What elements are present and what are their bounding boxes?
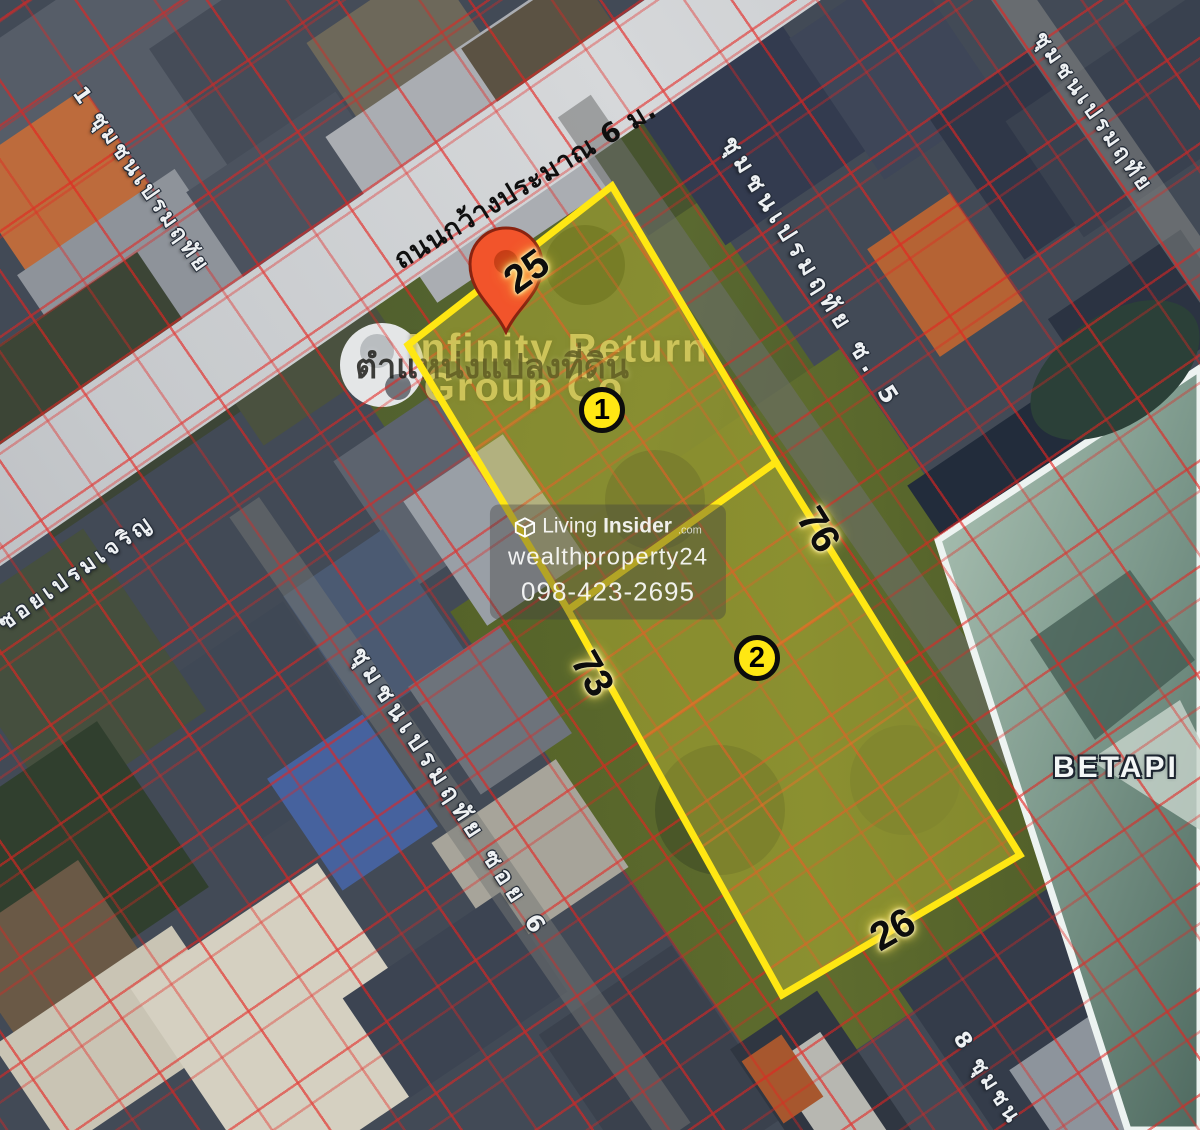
plot-number-2: 2 <box>749 642 765 675</box>
plot-number-1-badge: 1 <box>579 387 625 433</box>
account-name: wealthproperty24 <box>508 544 708 572</box>
plot-number-1: 1 <box>594 394 610 427</box>
brand-tld: .com <box>678 525 702 537</box>
brand-prefix: Living <box>542 515 597 539</box>
satellite-map: 1 ชุมชนเปรมฤทัย ชุมชนเปรมฤทัย ชุมชนเปรมฤ… <box>0 0 1200 1130</box>
brand-logo-icon <box>514 517 536 539</box>
watermark: LivingInsider.com wealthproperty24 098-4… <box>490 505 726 620</box>
plot-number-2-badge: 2 <box>734 635 780 681</box>
watermark-brand: LivingInsider.com <box>514 515 702 539</box>
brand-suffix: Insider <box>603 515 672 539</box>
betapi-building-label: BETAPI <box>1053 751 1179 785</box>
phone-number: 098-423-2695 <box>521 577 695 608</box>
